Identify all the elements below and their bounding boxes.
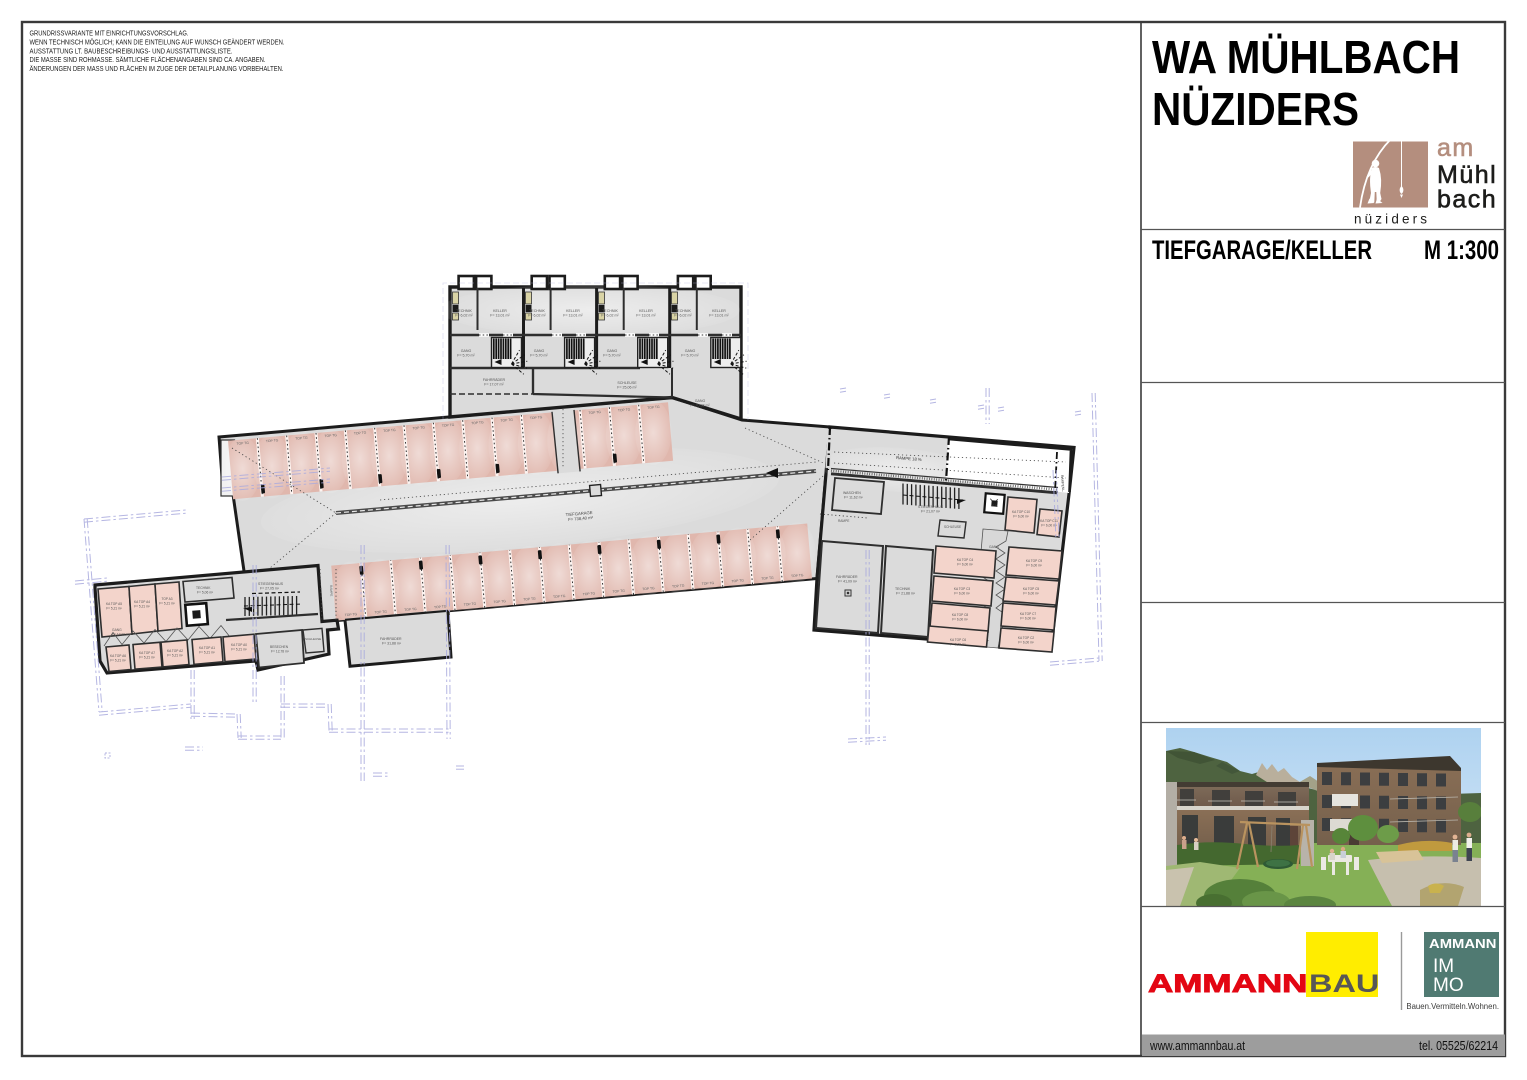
svg-text:tel. 05525/62214: tel. 05525/62214	[1419, 1038, 1498, 1053]
svg-text:KA TOP C8: KA TOP C8	[952, 613, 969, 617]
svg-text:TECHNIK: TECHNIK	[675, 309, 691, 313]
svg-text:GANG: GANG	[534, 349, 545, 353]
svg-text:www.ammannbau.at: www.ammannbau.at	[1149, 1038, 1245, 1053]
svg-text:STIEGENHAUS: STIEGENHAUS	[918, 505, 944, 509]
svg-text:FAHRRÄDER: FAHRRÄDER	[836, 575, 858, 579]
svg-text:AUSSTATTUNG LT. BAUBESCHREIBUN: AUSSTATTUNG LT. BAUBESCHREIBUNGS- UND AU…	[30, 48, 233, 55]
svg-text:F= 5,70 m²: F= 5,70 m²	[457, 354, 475, 358]
svg-text:am: am	[1437, 134, 1475, 162]
svg-text:nüziders: nüziders	[1354, 212, 1427, 227]
svg-text:KA TOP C4: KA TOP C4	[957, 558, 974, 562]
svg-text:F= 12,78 m²: F= 12,78 m²	[271, 649, 290, 653]
svg-text:KA TOP A0: KA TOP A0	[231, 643, 247, 647]
svg-text:DIE MASSE SIND ROHMASSE. SÄMTL: DIE MASSE SIND ROHMASSE. SÄMTLICHE FLÄCH…	[30, 56, 266, 64]
svg-text:F= 27,05 m²: F= 27,05 m²	[260, 587, 280, 591]
svg-text:GANG: GANG	[685, 349, 696, 353]
svg-text:F= 6,00 m²: F= 6,00 m²	[957, 563, 973, 567]
svg-text:TECHNIK: TECHNIK	[895, 587, 911, 591]
svg-text:FAHRRÄDER: FAHRRÄDER	[380, 637, 402, 641]
svg-text:BAU: BAU	[1309, 970, 1379, 998]
svg-text:KA TOP C9: KA TOP C9	[1026, 559, 1043, 563]
svg-text:bach: bach	[1437, 186, 1497, 214]
svg-text:F= 5,70 m²: F= 5,70 m²	[603, 354, 621, 358]
svg-text:KELLER: KELLER	[566, 309, 580, 313]
svg-text:KELLER: KELLER	[639, 309, 653, 313]
svg-text:TECHNIK: TECHNIK	[529, 309, 545, 313]
svg-text:GANG: GANG	[461, 349, 472, 353]
svg-text:M 1:300: M 1:300	[1424, 235, 1499, 265]
svg-text:KA TOP C2: KA TOP C2	[1018, 636, 1035, 640]
svg-text:F= 5,21 m²: F= 5,21 m²	[159, 602, 175, 606]
svg-text:F= 31,88 m²: F= 31,88 m²	[382, 642, 402, 646]
svg-text:SCHLEUSE: SCHLEUSE	[305, 637, 321, 641]
svg-text:AMMANN: AMMANN	[1429, 936, 1496, 951]
svg-text:GANG: GANG	[695, 399, 706, 403]
svg-text:MO: MO	[1433, 975, 1464, 996]
svg-text:ÄNDERUNGEN DER MASS UND FLÄCHE: ÄNDERUNGEN DER MASS UND FLÄCHEN IM ZUGE …	[30, 65, 284, 73]
svg-text:F= 13,01 m²: F= 13,01 m²	[709, 314, 729, 318]
svg-text:F= 13,01 m²: F= 13,01 m²	[636, 314, 656, 318]
svg-text:F= 6,00 m²: F= 6,00 m²	[950, 643, 966, 647]
svg-text:F= 17,00 m²: F= 17,00 m²	[112, 632, 131, 636]
svg-text:F= 41,09 m²: F= 41,09 m²	[838, 580, 858, 584]
svg-text:F= 13,01 m²: F= 13,01 m²	[563, 314, 583, 318]
svg-text:SCHLEUSE: SCHLEUSE	[617, 381, 637, 385]
svg-text:KA TOP A7: KA TOP A7	[139, 651, 155, 655]
svg-text:STIEGENHAUS: STIEGENHAUS	[258, 582, 284, 586]
svg-text:F= 6,02 m²: F= 6,02 m²	[455, 314, 473, 318]
svg-text:KA TOP A5: KA TOP A5	[106, 602, 122, 606]
svg-text:FAHRRÄDER: FAHRRÄDER	[483, 378, 506, 382]
svg-text:WASCHEN: WASCHEN	[843, 491, 861, 495]
svg-text:F= 6,00 m²: F= 6,00 m²	[1023, 592, 1039, 596]
svg-text:RAMPE: RAMPE	[329, 585, 333, 596]
svg-text:KELLER: KELLER	[493, 309, 507, 313]
svg-text:KA TOP C3: KA TOP C3	[954, 587, 971, 591]
svg-text:F= 21,07 m²: F= 21,07 m²	[921, 510, 941, 514]
svg-text:F= 6,02 m²: F= 6,02 m²	[601, 314, 619, 318]
svg-text:KA TOP C7: KA TOP C7	[1020, 612, 1037, 616]
svg-text:KA TOP C11: KA TOP C11	[1040, 519, 1058, 523]
svg-text:F= 6,02 m²: F= 6,02 m²	[528, 314, 546, 318]
svg-text:F= 6,00 m²: F= 6,00 m²	[1041, 524, 1057, 528]
svg-text:F= 6,00 m²: F= 6,00 m²	[1018, 641, 1034, 645]
svg-text:KA TOP C10: KA TOP C10	[1012, 510, 1030, 514]
svg-text:TECHNIK: TECHNIK	[456, 309, 472, 313]
svg-text:F= 5,21 m²: F= 5,21 m²	[110, 659, 126, 663]
svg-text:KELLER: KELLER	[712, 309, 726, 313]
svg-text:F= 20,88 m²: F= 20,88 m²	[690, 404, 710, 408]
svg-text:F= 5,21 m²: F= 5,21 m²	[139, 656, 155, 660]
svg-text:KA TOP A4: KA TOP A4	[134, 600, 150, 604]
svg-text:WENN TECHNISCH MÖGLICH; KANN D: WENN TECHNISCH MÖGLICH; KANN DIE EINTEIL…	[30, 38, 285, 46]
svg-text:GRUNDRISSVARIANTE MIT EINRICHT: GRUNDRISSVARIANTE MIT EINRICHTUNGSVORSCH…	[30, 31, 189, 38]
svg-text:F= 6,02 m²: F= 6,02 m²	[674, 314, 692, 318]
svg-text:F= 5,21 m²: F= 5,21 m²	[106, 607, 122, 611]
svg-text:KA TOP C5: KA TOP C5	[1023, 587, 1040, 591]
svg-text:F= 6,00 m²: F= 6,00 m²	[1020, 617, 1036, 621]
svg-text:KA TOP A6: KA TOP A6	[110, 654, 126, 658]
svg-text:RAMPE: RAMPE	[838, 519, 849, 523]
svg-text:KA TOP A2: KA TOP A2	[167, 649, 183, 653]
svg-text:F= 5,21 m²: F= 5,21 m²	[231, 648, 247, 652]
svg-text:F= 5,70 m²: F= 5,70 m²	[681, 354, 699, 358]
svg-text:F= 25,06 m²: F= 25,06 m²	[617, 386, 637, 390]
svg-text:KA TOP A1: KA TOP A1	[199, 646, 215, 650]
svg-text:F= 5,70 m²: F= 5,70 m²	[530, 354, 548, 358]
svg-text:F= 6,00 m²: F= 6,00 m²	[954, 592, 970, 596]
svg-text:SCHLEUSE: SCHLEUSE	[944, 525, 961, 529]
svg-text:TOP A3: TOP A3	[161, 597, 172, 601]
svg-text:F= 5,06 m²: F= 5,06 m²	[197, 590, 214, 594]
svg-text:TECHNIK: TECHNIK	[602, 309, 618, 313]
svg-text:GANG: GANG	[989, 545, 999, 549]
svg-text:IM: IM	[1433, 956, 1454, 977]
svg-text:F= 13,01 m²: F= 13,01 m²	[490, 314, 510, 318]
svg-text:AMMANN: AMMANN	[1148, 970, 1307, 998]
svg-text:F= 6,00 m²: F= 6,00 m²	[1013, 515, 1029, 519]
svg-text:GANG: GANG	[607, 349, 618, 353]
svg-text:F= 11,62 m²: F= 11,62 m²	[844, 496, 864, 500]
svg-text:KA TOP C6: KA TOP C6	[950, 638, 967, 642]
svg-text:F= 6,00 m²: F= 6,00 m²	[1026, 564, 1042, 568]
svg-text:WA MÜHLBACH: WA MÜHLBACH	[1152, 31, 1460, 83]
svg-text:F= 5,21 m²: F= 5,21 m²	[134, 605, 150, 609]
svg-text:F= 5,21 m²: F= 5,21 m²	[199, 651, 215, 655]
svg-text:F= 17,07 m²: F= 17,07 m²	[484, 383, 504, 387]
svg-text:TIEFGARAGE/KELLER: TIEFGARAGE/KELLER	[1152, 235, 1372, 265]
svg-text:F= 6,00 m²: F= 6,00 m²	[952, 618, 968, 622]
svg-text:Bauen.Vermitteln.Wohnen.: Bauen.Vermitteln.Wohnen.	[1406, 1002, 1499, 1011]
svg-text:F= 21,88 m²: F= 21,88 m²	[896, 592, 916, 596]
svg-text:F= 5,21 m²: F= 5,21 m²	[167, 654, 183, 658]
svg-text:NÜZIDERS: NÜZIDERS	[1152, 83, 1359, 135]
